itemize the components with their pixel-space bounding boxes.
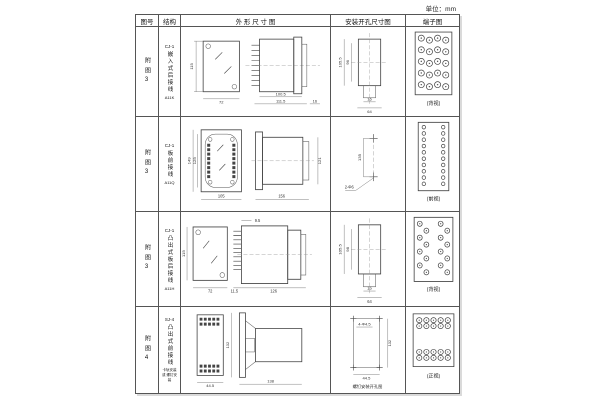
outline-drawing-row1: 115 72 100.5 111.5 16 (181, 27, 330, 116)
dim-label: 125 (192, 157, 197, 165)
terminal-circles (417, 318, 451, 361)
structure-name: 嵌入式后接线 (166, 51, 174, 93)
terminal-caption: (背视) (427, 285, 441, 293)
header-mounting: 安装开孔尺寸图 (331, 15, 406, 27)
dim-label: 156 (278, 194, 285, 199)
mounting-drawing-row1: 105.5 96 16 64 (331, 27, 405, 116)
side-view: 121 156 (251, 132, 321, 199)
dim-label: 44.5 (206, 383, 215, 388)
row1-terminal-cell: (背视) (406, 27, 459, 117)
row4-structure: SJ-4 凸出式前接线 卡轨安装 或 螺钉安装 (159, 307, 181, 393)
model-code: A11K (165, 95, 175, 100)
terminal-diagram-row2: (前视) (406, 117, 459, 211)
dim-label: 105 (218, 194, 225, 199)
row1-structure: CJ-1 嵌入式后接线 A11K (159, 27, 181, 117)
row1-mounting-cell: 105.5 96 16 64 (331, 27, 406, 117)
terminal-circles (417, 221, 449, 275)
mounting-drawing-row3: 105.5 98 16 64 (331, 212, 405, 306)
dim-label: 16 (313, 98, 318, 103)
row1-fig-no: 附图3 (136, 27, 159, 117)
terminal-diagram-row1: (背视) (406, 27, 459, 116)
terminal-diagram-row4: (正视) (406, 307, 459, 393)
terminal-caption: (前视) (427, 194, 441, 202)
model-label: SJ-4 (165, 317, 174, 322)
dim-label: 11.5 (231, 289, 239, 294)
dim-label: 138 (267, 379, 275, 384)
dim-label: 9.5 (255, 218, 261, 223)
structure-name: 凸出式前接线 (166, 324, 174, 366)
terminal-circles (418, 35, 449, 90)
dim-label: 96 (345, 59, 350, 64)
fig-no-label: 附图4 (143, 335, 152, 365)
row4-fig-no: 附图4 (136, 307, 159, 393)
front-view: 44.5 (197, 315, 223, 388)
dim-label: 132 (225, 342, 230, 349)
dim-label: 64 (367, 109, 372, 114)
fig-no-label: 附图3 (143, 244, 152, 274)
row1-outline-cell: 115 72 100.5 111.5 16 (181, 27, 331, 117)
hole-label: 4-Φ4.5 (358, 322, 371, 327)
dim-label: 105.5 (338, 243, 343, 254)
dim-label: 16 (367, 285, 372, 290)
mounting-note: 卡轨安装 或 螺钉安装 (161, 368, 178, 382)
row3-structure: CJ-1 凸出式板后接线 A11H (159, 212, 181, 307)
row4-terminal-cell: (正视) (406, 307, 459, 393)
row3-terminal-cell: (背视) (406, 212, 459, 307)
row2-terminal-cell: (前视) (406, 117, 459, 212)
dim-label: 44.5 (363, 375, 372, 380)
dim-label: 115 (189, 62, 194, 69)
dim-label: 100.5 (276, 91, 287, 96)
mounting-drawing-row2: 135 2-Φ6 (331, 117, 405, 211)
row2-mounting-cell: 135 2-Φ6 (331, 117, 406, 212)
front-view: 115 72 (189, 41, 239, 104)
side-view: 9.5 11.5 126 (231, 218, 312, 294)
model-label: CJ-1 (165, 143, 175, 148)
dim-label: 149 (187, 157, 192, 165)
dim-label: 72 (208, 289, 213, 294)
terminal-circles (422, 125, 445, 185)
row2-fig-no: 附图3 (136, 117, 159, 212)
fig-no-label: 附图3 (143, 149, 152, 179)
model-code: A11Q (165, 180, 175, 185)
dim-label: 105.5 (338, 57, 343, 68)
model-label: CJ-1 (165, 44, 175, 49)
spec-table: 图号 结构 外 形 尺 寸 图 安装开孔尺寸图 端子图 附图3 CJ-1 嵌入式… (135, 14, 460, 394)
outline-drawing-row3: 115 72 9.5 11.5 126 (181, 212, 330, 306)
dim-label: 132 (387, 340, 392, 347)
model-code: A11H (165, 286, 175, 291)
model-label: CJ-1 (165, 228, 175, 233)
structure-name: 板前接线 (166, 150, 174, 178)
header-structure: 结构 (159, 15, 181, 27)
row3-outline-cell: 115 72 9.5 11.5 126 (181, 212, 331, 307)
dim-label: 121 (317, 157, 322, 165)
side-view: 100.5 111.5 16 (245, 37, 320, 104)
dim-label: 98 (345, 246, 350, 251)
row2-structure: CJ-1 板前接线 A11Q (159, 117, 181, 212)
row3-fig-no: 附图3 (136, 212, 159, 307)
dim-label: 135 (357, 153, 362, 161)
dim-label: 64 (367, 299, 372, 304)
header-fig-no: 图号 (136, 15, 159, 27)
outline-drawing-row2: 149 125 105 121 156 (181, 117, 330, 211)
terminal-diagram-row3: (背视) (406, 212, 459, 306)
side-view: 132 138 (225, 313, 302, 384)
dim-label: 16 (367, 96, 372, 101)
row3-mounting-cell: 105.5 98 16 64 (331, 212, 406, 307)
header-outline: 外 形 尺 寸 图 (181, 15, 331, 27)
dim-label: 115 (181, 250, 186, 258)
mounting-drawing-row4: 4-Φ4.5 132 44.5 螺钉安装开孔图 (331, 307, 405, 393)
terminal-caption: (背视) (427, 100, 441, 107)
row2-outline-cell: 149 125 105 121 156 (181, 117, 331, 212)
header-terminal: 端子图 (406, 15, 459, 27)
front-view: 115 72 (181, 227, 227, 294)
unit-label: 单位：mm (356, 3, 456, 13)
structure-name: 凸出式板后接线 (166, 235, 174, 284)
dim-label: 111.5 (276, 98, 286, 103)
front-view: 149 125 105 (187, 130, 242, 199)
fig-no-label: 附图3 (143, 57, 152, 87)
mounting-caption: 螺钉安装开孔图 (353, 383, 383, 389)
terminal-caption: (正视) (427, 372, 441, 379)
hole-label: 2-Φ6 (345, 184, 355, 189)
dim-label: 126 (270, 289, 277, 294)
outline-drawing-row4: 44.5 132 138 (181, 307, 330, 393)
dim-label: 72 (219, 99, 224, 104)
row4-mounting-cell: 4-Φ4.5 132 44.5 螺钉安装开孔图 (331, 307, 406, 393)
row4-outline-cell: 44.5 132 138 (181, 307, 331, 393)
